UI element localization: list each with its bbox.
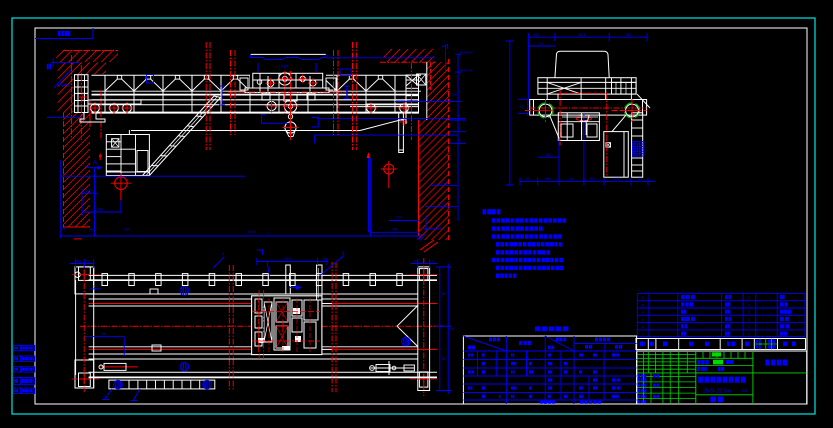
svg-text:1M: 1M — [62, 227, 67, 231]
svg-text:160: 160 — [413, 259, 418, 263]
svg-text:300: 300 — [452, 93, 457, 97]
svg-text:7: 7 — [104, 395, 106, 399]
svg-text:2218: 2218 — [578, 33, 586, 37]
svg-text:363: 363 — [97, 208, 103, 212]
svg-text:A: A — [93, 161, 97, 167]
svg-text:360: 360 — [392, 227, 398, 231]
svg-text:384: 384 — [124, 228, 130, 232]
svg-text:9474: 9474 — [248, 229, 258, 234]
svg-text:40: 40 — [436, 224, 440, 228]
svg-text:84: 84 — [90, 228, 94, 232]
svg-text:4040-040: 4040-040 — [460, 69, 473, 73]
svg-text:80: 80 — [638, 177, 642, 181]
svg-text:1814: 1814 — [284, 257, 292, 261]
svg-text:A5: A5 — [742, 388, 748, 393]
svg-text:1: 1 — [133, 396, 135, 400]
svg-text:38: 38 — [102, 332, 106, 336]
svg-text:170: 170 — [442, 181, 448, 185]
svg-text:4B: 4B — [450, 327, 455, 331]
svg-text:170: 170 — [395, 215, 401, 219]
svg-text:B5: B5 — [442, 357, 446, 361]
svg-text:60: 60 — [457, 138, 461, 142]
svg-text:140: 140 — [533, 33, 539, 37]
svg-text:800: 800 — [590, 177, 596, 181]
svg-text:43: 43 — [569, 177, 573, 181]
svg-text:84: 84 — [323, 257, 327, 261]
svg-text:40: 40 — [86, 259, 90, 263]
svg-text:140: 140 — [538, 42, 544, 46]
svg-text:180: 180 — [545, 153, 551, 157]
svg-text:140: 140 — [93, 285, 98, 289]
svg-text:B5: B5 — [442, 292, 446, 296]
svg-text:4040-040: 4040-040 — [460, 51, 473, 55]
svg-text:260: 260 — [439, 202, 445, 206]
svg-text:340: 340 — [625, 33, 631, 37]
svg-text:71: 71 — [431, 259, 435, 263]
svg-text:1914: 1914 — [279, 64, 289, 69]
svg-text:50: 50 — [519, 105, 523, 109]
svg-text:50: 50 — [457, 114, 461, 118]
svg-text:50: 50 — [526, 177, 530, 181]
svg-text:25/5t-22.5m: 25/5t-22.5m — [703, 389, 731, 395]
svg-text:163: 163 — [85, 189, 91, 193]
svg-text:140: 140 — [76, 259, 82, 263]
svg-text:560: 560 — [545, 177, 551, 181]
svg-text:60: 60 — [457, 126, 461, 130]
svg-text:600: 600 — [614, 177, 620, 181]
